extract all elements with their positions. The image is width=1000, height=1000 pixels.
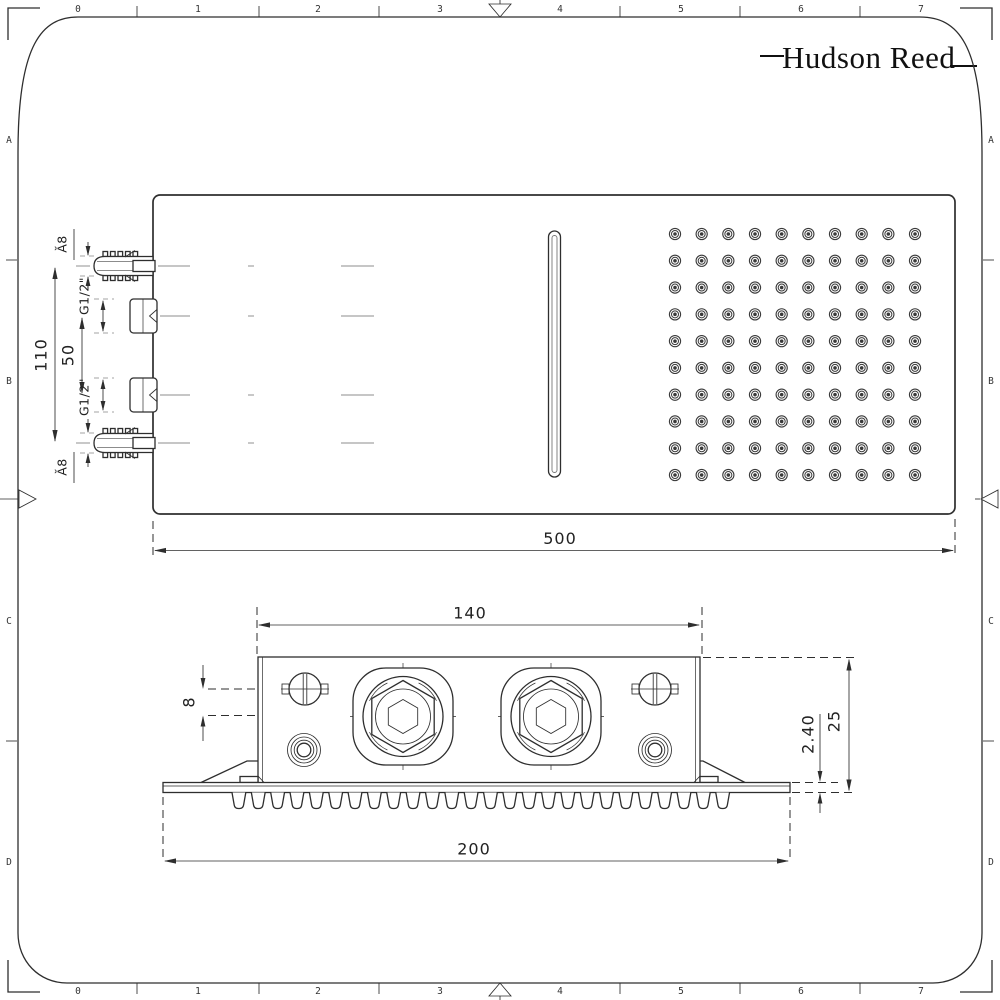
nut-flange <box>353 668 453 765</box>
dim-face-thickness: 2.40 <box>799 714 823 813</box>
dim-label-200: 200 <box>457 840 491 859</box>
nozzle-center <box>887 232 891 236</box>
nozzle-center <box>700 420 704 424</box>
anchor-rib <box>118 453 123 458</box>
dim-label-110: 110 <box>32 338 51 372</box>
nozzle-center <box>807 420 811 424</box>
nozzle-center <box>913 232 917 236</box>
nozzle-center <box>673 286 677 290</box>
nozzle-tooth <box>387 793 401 809</box>
nozzle-tooth <box>309 793 323 809</box>
nozzle-center <box>807 473 811 477</box>
nozzle-center <box>700 393 704 397</box>
wall-anchor-top <box>94 251 155 282</box>
nozzle-center <box>753 286 757 290</box>
nozzle-center <box>700 286 704 290</box>
nozzle-tooth <box>580 793 594 809</box>
nozzle-tooth <box>542 793 556 809</box>
nozzle-center <box>753 232 757 236</box>
ruler-col-top-6: 6 <box>798 4 804 15</box>
nozzle-center <box>833 313 837 317</box>
nozzle-center <box>833 446 837 450</box>
nozzle-center <box>887 313 891 317</box>
nozzle-center <box>860 366 864 370</box>
ruler-row-right-A: A <box>988 135 994 146</box>
ruler-col-bottom-4: 4 <box>557 986 563 997</box>
nozzle-center <box>887 259 891 263</box>
dim-overall-width: 500 <box>153 519 955 558</box>
ruler-col-bottom-0: 0 <box>75 986 81 997</box>
ruler-row-left-D: D <box>6 857 12 868</box>
nozzle-center <box>913 393 917 397</box>
nozzle-center <box>753 393 757 397</box>
nozzle-center <box>807 259 811 263</box>
nozzle-center <box>833 393 837 397</box>
dim-label-25: 25 <box>825 710 844 732</box>
nozzle-center <box>700 313 704 317</box>
nozzle-center <box>727 286 731 290</box>
nozzle-center <box>860 339 864 343</box>
ruler-row-right-D: D <box>988 857 994 868</box>
nozzle-center <box>673 473 677 477</box>
center-marker-bottom <box>489 983 511 1000</box>
nozzle-center <box>780 232 784 236</box>
nozzle-center <box>780 446 784 450</box>
nozzle-center <box>807 366 811 370</box>
anchor-rib <box>133 252 138 257</box>
ruler-col-bottom-7: 7 <box>918 986 924 997</box>
corner-mark-bottom-right <box>960 960 992 992</box>
nozzle-tooth <box>619 793 633 809</box>
nozzle-center <box>727 473 731 477</box>
ruler-row-right-B: B <box>988 376 994 387</box>
dim-label-anchor-top: Ă8 <box>54 235 69 253</box>
nozzle-center <box>673 366 677 370</box>
dim-mount-spacing: 110 <box>32 267 58 442</box>
ruler-col-top-5: 5 <box>678 4 684 15</box>
anchor-rib <box>133 453 138 458</box>
nozzle-center <box>913 286 917 290</box>
nozzle-center <box>913 420 917 424</box>
ruler-col-bottom-6: 6 <box>798 986 804 997</box>
nozzle-center <box>807 232 811 236</box>
dim-label-8: 8 <box>180 696 199 707</box>
ruler-col-top-4: 4 <box>557 4 563 15</box>
nozzle-tooth <box>290 793 304 809</box>
nozzle-center <box>727 339 731 343</box>
nozzle-center <box>833 420 837 424</box>
nozzle-tooth <box>696 793 710 809</box>
center-marker-right <box>975 490 998 508</box>
anchor-rib <box>111 276 116 281</box>
anchor-rib <box>133 429 138 434</box>
inlet-bottom <box>130 378 157 412</box>
anchor-rib <box>103 453 108 458</box>
nozzle-center <box>700 366 704 370</box>
nut-flange <box>501 668 601 765</box>
dim-label-500: 500 <box>543 529 577 548</box>
side-view: 140 8 2.40 25 <box>163 604 856 864</box>
wall-anchor-bottom <box>94 428 155 459</box>
anchor-rib <box>133 276 138 281</box>
nozzle-center <box>807 339 811 343</box>
dim-face-width: 200 <box>164 840 789 864</box>
nozzle-center <box>887 339 891 343</box>
nozzle-center <box>700 473 704 477</box>
anchor-rib <box>103 429 108 434</box>
mounting-body <box>258 657 700 784</box>
nozzle-tooth <box>638 793 652 809</box>
nozzle-tooth <box>484 793 498 809</box>
nozzle-center <box>700 259 704 263</box>
nozzle-center <box>887 473 891 477</box>
nozzle-tooth <box>522 793 536 809</box>
nozzle-center <box>700 232 704 236</box>
anchor-rib <box>111 429 116 434</box>
nozzle-center <box>753 339 757 343</box>
nozzle-center <box>780 286 784 290</box>
technical-drawing: 0011223344556677AABBCCDD <box>0 0 1000 1000</box>
nozzle-center <box>753 259 757 263</box>
nozzle-tooth <box>426 793 440 809</box>
nozzle-center <box>780 366 784 370</box>
nozzle-center <box>753 366 757 370</box>
nozzle-center <box>887 420 891 424</box>
nozzle-center <box>727 420 731 424</box>
ruler-col-bottom-1: 1 <box>195 986 201 997</box>
nozzle-tooth <box>600 793 614 809</box>
ruler-col-top-7: 7 <box>918 4 924 15</box>
nozzle-center <box>727 259 731 263</box>
ruler-col-top-3: 3 <box>437 4 443 15</box>
anchor-rib <box>111 252 116 257</box>
nozzle-center <box>673 446 677 450</box>
nozzle-center <box>700 446 704 450</box>
nozzle-tooth <box>464 793 478 809</box>
nozzle-center <box>860 286 864 290</box>
nozzle-teeth-row <box>232 793 730 809</box>
nozzle-center <box>860 446 864 450</box>
dim-label-240: 2.40 <box>799 714 818 754</box>
anchor-rib <box>118 429 123 434</box>
anchor-rib <box>103 252 108 257</box>
nozzle-center <box>673 232 677 236</box>
nozzle-center <box>807 446 811 450</box>
nozzle-center <box>887 446 891 450</box>
corner-mark-top-right <box>960 8 992 40</box>
nozzle-center <box>753 313 757 317</box>
nozzle-center <box>860 313 864 317</box>
nozzle-center <box>700 339 704 343</box>
dim-anchor-bottom: Ă8 <box>54 419 96 483</box>
nozzle-center <box>780 339 784 343</box>
nozzle-center <box>887 366 891 370</box>
nozzle-center <box>833 366 837 370</box>
nozzle-tooth <box>445 793 459 809</box>
nozzle-center <box>913 259 917 263</box>
inlet-top <box>130 299 157 333</box>
corner-mark-bottom-left <box>8 960 40 992</box>
dim-body-depth: 25 <box>825 659 852 792</box>
nozzle-center <box>860 393 864 397</box>
dim-label-140: 140 <box>453 604 487 623</box>
hex-nut-right <box>498 663 604 770</box>
nozzle-tooth <box>271 793 285 809</box>
drawing-sheet: { "brand": { "name": "Hudson Reed" }, "f… <box>0 0 1000 1000</box>
dim-inlet-thread-bottom: G1/2" <box>76 378 114 416</box>
nozzle-tooth <box>251 793 265 809</box>
nozzle-center <box>673 420 677 424</box>
nozzle-center <box>727 232 731 236</box>
nozzle-center <box>673 339 677 343</box>
ruler-row-left-B: B <box>6 376 12 387</box>
ruler-col-top-2: 2 <box>315 4 321 15</box>
nozzle-center <box>673 313 677 317</box>
nozzle-center <box>780 393 784 397</box>
anchor-rib <box>103 276 108 281</box>
nozzle-center <box>860 420 864 424</box>
nozzle-center <box>913 339 917 343</box>
center-marker-top <box>489 0 511 17</box>
nozzle-tooth <box>232 793 246 809</box>
ruler-col-bottom-2: 2 <box>315 986 321 997</box>
nozzle-center <box>913 366 917 370</box>
dim-body-width: 140 <box>258 604 700 628</box>
nozzle-tooth <box>561 793 575 809</box>
ruler-row-left-A: A <box>6 135 12 146</box>
nozzle-center <box>860 473 864 477</box>
dim-label-50: 50 <box>59 344 78 366</box>
ruler-col-bottom-5: 5 <box>678 986 684 997</box>
nozzle-center <box>913 473 917 477</box>
nozzle-center <box>833 286 837 290</box>
nozzle-center <box>753 420 757 424</box>
nozzle-center <box>833 259 837 263</box>
nozzle-tooth <box>406 793 420 809</box>
nozzle-tooth <box>367 793 381 809</box>
anchor-rib <box>118 276 123 281</box>
nozzle-center <box>727 446 731 450</box>
ruler-col-top-1: 1 <box>195 4 201 15</box>
nozzle-center <box>807 313 811 317</box>
nozzle-tooth <box>329 793 343 809</box>
nozzle-center <box>807 393 811 397</box>
dim-label-anchor-bottom: Ă8 <box>54 458 69 476</box>
corner-mark-top-left <box>8 8 40 40</box>
dim-label-g12-bottom: G1/2" <box>76 378 91 416</box>
ruler-row-left-C: C <box>6 616 12 627</box>
nozzle-center <box>860 259 864 263</box>
bracket-left <box>201 761 258 783</box>
anchor-rib <box>118 252 123 257</box>
nozzle-tooth <box>503 793 517 809</box>
nozzle-tooth <box>716 793 730 809</box>
nozzle-center <box>727 393 731 397</box>
hex-nut-left <box>350 663 456 770</box>
nozzle-center <box>727 366 731 370</box>
nozzle-center <box>673 259 677 263</box>
nozzle-center <box>833 339 837 343</box>
nozzle-center <box>833 473 837 477</box>
nozzle-center <box>860 232 864 236</box>
nozzle-center <box>780 313 784 317</box>
ruler-row-right-C: C <box>988 616 994 627</box>
dim-axis-offset: 8 <box>180 665 206 741</box>
nozzle-tooth <box>677 793 691 809</box>
nozzle-center <box>673 393 677 397</box>
ruler-col-top-0: 0 <box>75 4 81 15</box>
nozzle-center <box>913 313 917 317</box>
nozzle-center <box>807 286 811 290</box>
nozzle-center <box>780 420 784 424</box>
nozzle-center <box>753 473 757 477</box>
nozzle-center <box>727 313 731 317</box>
bracket-right <box>700 761 745 783</box>
nozzle-center <box>913 446 917 450</box>
nozzle-tooth <box>348 793 362 809</box>
nozzle-center <box>887 286 891 290</box>
nozzle-center <box>780 473 784 477</box>
top-view: 500 110 50 G1/2" <box>32 195 955 558</box>
face-plate <box>163 783 790 793</box>
nozzle-tooth <box>658 793 672 809</box>
shower-head-panel <box>153 195 955 514</box>
nozzle-center <box>887 393 891 397</box>
anchor-rib <box>111 453 116 458</box>
ruler-col-bottom-3: 3 <box>437 986 443 997</box>
nozzle-center <box>833 232 837 236</box>
nozzle-center <box>780 259 784 263</box>
nozzle-center <box>753 446 757 450</box>
